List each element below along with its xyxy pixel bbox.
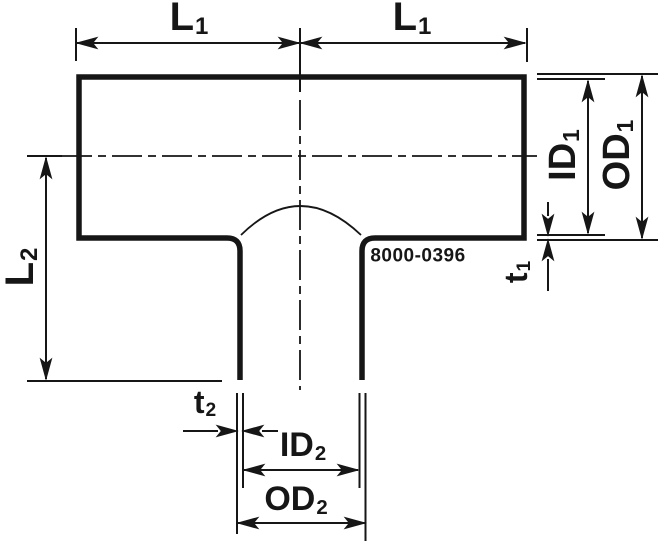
label-t1: t1	[500, 261, 532, 283]
label-t2: t2	[194, 386, 216, 418]
label-id2: ID2	[280, 428, 326, 462]
tee-outline	[79, 77, 524, 380]
dim-l1-left	[77, 38, 299, 49]
technical-drawing: L1 L1 L2 ID1 OD1 t1 t2 ID2 OD2 8000-0396	[0, 0, 659, 542]
dim-l2	[41, 158, 52, 379]
label-od1: OD1	[598, 120, 636, 191]
dim-id2	[244, 465, 358, 476]
centerlines	[62, 100, 537, 390]
label-l1-right: L1	[393, 0, 432, 37]
dim-od2	[238, 518, 365, 529]
dim-t2	[183, 426, 278, 437]
label-l1-left: L1	[170, 0, 209, 37]
dim-l1-right	[301, 38, 525, 49]
dim-od1	[637, 76, 648, 238]
part-number: 8000-0396	[370, 247, 465, 266]
dim-id1	[583, 81, 594, 233]
extension-lines	[27, 28, 658, 541]
label-od2: OD2	[264, 482, 327, 516]
label-l2: L2	[0, 248, 40, 287]
label-id1: ID1	[544, 129, 582, 181]
dim-t1	[543, 202, 554, 291]
tee-diagram-svg	[0, 0, 659, 542]
crotch-arc	[241, 206, 361, 235]
